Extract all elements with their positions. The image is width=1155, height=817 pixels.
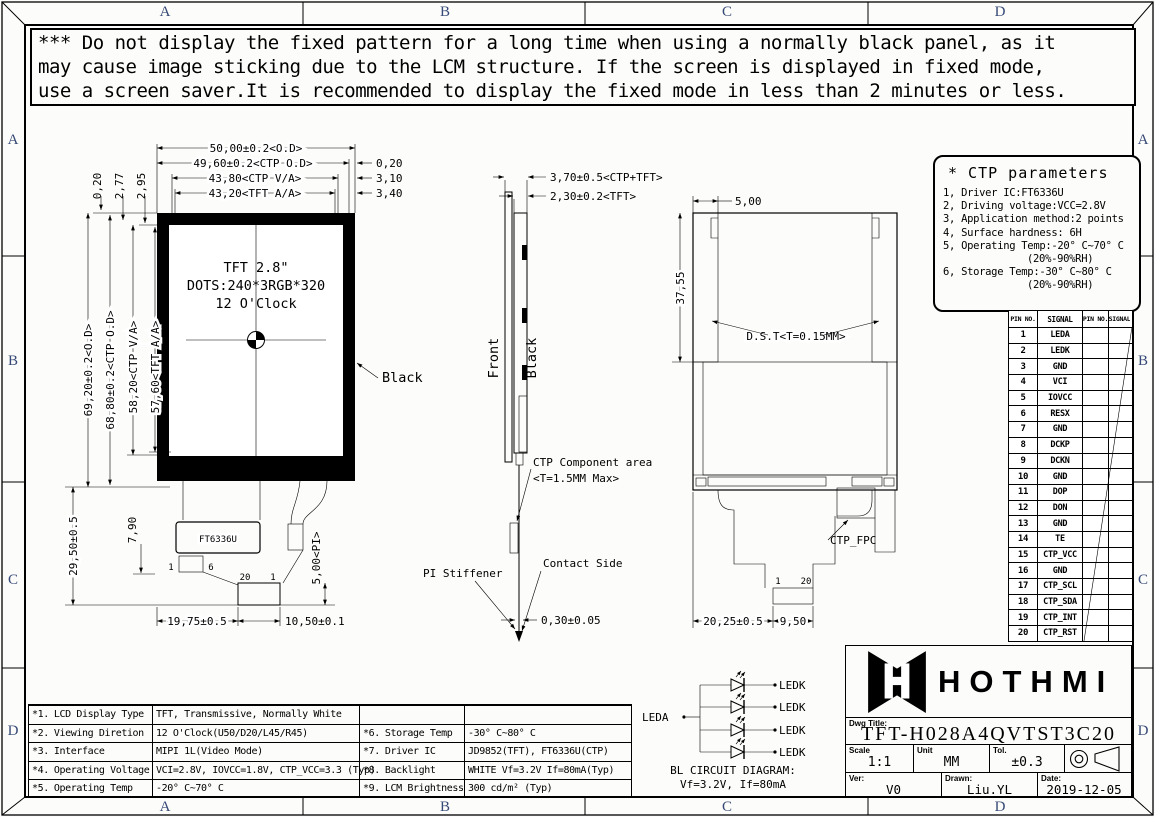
pin-signal-cell: DCKP (1037, 438, 1082, 453)
pin-number-cell: 16 (1009, 563, 1037, 578)
spec-key-cell: *4. Operating Voltage (29, 762, 152, 780)
pin-number-cell: 20 (1009, 626, 1037, 641)
dimension-label: 50,00±0.2<O.D> (210, 142, 303, 155)
spec-value-cell: 12 O'Clock(U50/D20/L45/R45) (152, 725, 359, 743)
front-view-drawing: TFT 2.8" DOTS:240*3RGB*320 12 O'Clock 50… (35, 130, 445, 655)
zone-label: C (4, 571, 22, 589)
dimension-label: 0,30±0.05 (541, 614, 601, 627)
pin-number: 6 (208, 563, 213, 573)
spec-item-label: Interface (54, 746, 105, 757)
zone-label: C (718, 798, 736, 816)
zone-label: B (4, 352, 22, 370)
pin-signal-cell: LEDK (1037, 344, 1082, 359)
zone-label: B (1134, 352, 1152, 370)
pin-number-cell: 15 (1009, 548, 1037, 563)
zone-label: D (991, 3, 1009, 21)
ver-drawn-date-row: Ver: V0 Drawn: Liu.YL Date: 2019-12-05 (846, 772, 1131, 797)
version-cell: Ver: V0 (846, 773, 941, 797)
spec-value-cell: TFT, Transmissive, Normally White (152, 706, 359, 724)
dimension-label: 58,20<CTP V/A> (127, 320, 140, 413)
dimension-label: 5,00<PI> (310, 531, 323, 584)
bl-circuit-caption: Vf=3.2V, If=80mA (680, 778, 786, 791)
contact-side-label: Contact Side (543, 557, 622, 570)
pin-signal-cell: CTP_RST (1037, 626, 1082, 641)
dst-label: D.S.T<T=0.15MM> (746, 330, 846, 343)
dimension-label: 3,10 (376, 172, 403, 185)
spec-item-label: LCM Brightness (385, 783, 464, 794)
spec-key-cell: *2. Viewing Diretion (29, 725, 152, 743)
pin-number-cell: 7 (1009, 422, 1037, 437)
pin-number-cell: 14 (1009, 532, 1037, 547)
pin-table-header-cell: PIN NO. (1082, 311, 1108, 327)
spec-item-label: LCD Display Type (54, 709, 144, 720)
led-icon (731, 701, 744, 713)
display-spec-text: TFT 2.8" (223, 260, 288, 276)
pin-signal-cell: GND (1037, 422, 1082, 437)
front-side-label: Front (486, 338, 502, 379)
zone-label: A (1134, 131, 1152, 149)
zone-label: A (156, 3, 174, 21)
pin-number-cell: 1 (1009, 328, 1037, 343)
dimension-label: 3,40 (376, 187, 403, 200)
spec-item-label: Backlight (385, 765, 436, 776)
pin-number: 1 (168, 563, 173, 573)
spec-key-cell: *1. LCD Display Type (29, 706, 152, 724)
drawn-by-label: Drawn: (945, 774, 972, 783)
pin-signal-cell: LEDA (1037, 328, 1082, 343)
spec-item-label: Operating Voltage (54, 765, 150, 776)
pin-number-cell: 5 (1009, 391, 1037, 406)
pin-number-cell: 9 (1009, 454, 1037, 469)
pin-number-cell: 10 (1009, 469, 1037, 484)
pin-number: 1 (270, 573, 275, 583)
unit-label: Unit (917, 746, 933, 755)
hothmi-logo-icon (868, 649, 926, 715)
spec-item-number: *8. (363, 765, 380, 776)
pin-signal-cell: DON (1037, 501, 1082, 516)
spec-key-cell: *9. LCM Brightness (359, 780, 464, 798)
pin-number-cell: 3 (1009, 359, 1037, 374)
pi-stiffener-shape (510, 523, 518, 553)
pin-number: 1 (775, 577, 780, 587)
zone-label: B (436, 798, 454, 816)
pin-signal-cell: DOP (1037, 485, 1082, 500)
spec-item-number: *6. (363, 728, 380, 739)
spec-key-cell: *6. Storage Temp (359, 725, 464, 743)
ctp-fpc-shape (837, 488, 875, 518)
spec-item-label: Driver IC (385, 746, 436, 757)
back-body (693, 213, 897, 490)
dimension-label: 9,50 (780, 615, 807, 628)
fpc-contact-pad (238, 583, 280, 605)
unit-cell: Unit MM (913, 745, 989, 772)
zone-label: C (718, 3, 736, 21)
dimension-label: 2,95 (135, 173, 148, 200)
pin-table-header: PIN NO. SIGNAL PIN NO. SIGNAL (1009, 311, 1132, 327)
zone-label: A (4, 131, 22, 149)
date-label: Date: (1041, 774, 1061, 783)
warning-line: may cause image sticking due to the LCM … (38, 55, 1134, 79)
spec-item-number: *1. (32, 709, 49, 720)
spec-value-cell: -30° C~80° C (464, 725, 630, 743)
pin-number-cell: 17 (1009, 579, 1037, 594)
side-view-drawing: 3,70±0.5<CTP+TFT> 2,30±0.2<TFT> 0,30±0.0… (415, 150, 670, 670)
fpc-connector (288, 524, 303, 550)
black-callout: Black (357, 363, 423, 386)
pin-signal-cell: IOVCC (1037, 391, 1082, 406)
spec-table: *1. LCD Display Type TFT, Transmissive, … (28, 704, 632, 797)
scale-label: Scale (849, 746, 870, 755)
spec-item-number: *7. (363, 746, 380, 757)
spec-item-number: *4. (32, 765, 49, 776)
bl-circuit-diagram: LEDA LEDK LEDK LEDK (628, 660, 848, 800)
spec-value-cell: WHITE Vf=3.2V If=80mA(Typ) (464, 762, 630, 780)
ctp-parameter-line: (20%-90%RH) (935, 253, 1139, 266)
warning-line: *** Do not display the fixed pattern for… (38, 31, 1134, 55)
display-spec-text: DOTS:240*3RGB*320 (187, 278, 325, 294)
front-fpc: FT6336U 1 6 20 1 5,00<PI> (65, 481, 335, 605)
zone-label: D (4, 722, 22, 740)
dimension-label: 2,77 (113, 173, 126, 200)
pin-signal-cell: CTP_INT (1037, 610, 1082, 625)
dwg-title-row: Dwg Title: TFT-H028A4QVTST3C20 (846, 717, 1131, 744)
pin-table: PIN NO. SIGNAL PIN NO. SIGNAL 1 LEDA 2 L… (1008, 310, 1133, 642)
third-angle-projection-icon (1065, 745, 1127, 772)
chip-label: FT6336U (199, 535, 237, 545)
pin-number-cell: 4 (1009, 375, 1037, 390)
zone-label: C (1134, 571, 1152, 589)
warning-note: *** Do not display the fixed pattern for… (30, 28, 1136, 106)
spec-key-cell: *7. Driver IC (359, 743, 464, 761)
dimension-label: 69,20±0.2<O.D> (82, 323, 95, 416)
pin-number-cell: 8 (1009, 438, 1037, 453)
dwg-title-label: Dwg Title: (849, 719, 887, 728)
spec-value-cell: -20° C~70° C (152, 780, 359, 798)
pin-number-cell: 12 (1009, 501, 1037, 516)
spec-item-number: *5. (32, 783, 49, 794)
black-side-label: Black (524, 338, 540, 379)
dimension-label: 7,90 (126, 517, 139, 544)
drawn-by-cell: Drawn: Liu.YL (941, 773, 1037, 797)
spec-value-cell: VCI=2.8V, IOVCC=1.8V, CTP_VCC=3.3 (Typ) (152, 762, 359, 780)
dimension-label: 49,60±0.2<CTP O.D> (193, 157, 313, 170)
fpc-connector (179, 556, 203, 572)
dimension-label: 19,75±0.5 (167, 615, 227, 628)
pin-number-cell: 2 (1009, 344, 1037, 359)
ctp-parameter-line: 1, Driver IC:FT6336U (943, 187, 1139, 200)
side-callouts: CTP Component area <T=1.5MM Max> PI Stif… (423, 456, 652, 631)
ctp-component-area-label: <T=1.5MM Max> (533, 472, 619, 485)
spec-table-row: *1. LCD Display Type TFT, Transmissive, … (29, 705, 631, 724)
pin-signal-cell: CTP_SCL (1037, 579, 1082, 594)
tolerance-label: Tol. (993, 746, 1007, 755)
drawing-sheet: A B C D A B C D A B C D A B C D *** Do n… (0, 0, 1155, 817)
pin-number-cell: 6 (1009, 406, 1037, 421)
tolerance-cell: Tol. ±0.3 (989, 745, 1064, 772)
spec-value-cell: 300 cd/m² (Typ) (464, 780, 630, 798)
dimension-label: 0,20 (91, 173, 104, 200)
dimension-label: 2,30±0.2<TFT> (550, 190, 636, 203)
pin-signal-cell: VCI (1037, 375, 1082, 390)
pin-number-cell: 13 (1009, 516, 1037, 531)
pin-signal-cell: GND (1037, 563, 1082, 578)
pin-number-cell: 19 (1009, 610, 1037, 625)
ctp-parameter-line: (20%-90%RH) (935, 279, 1139, 292)
led-icon (731, 724, 744, 736)
fpc-tail-connector (773, 588, 813, 604)
front-bottom-dimensions: 19,75±0.5 10,50±0.1 (157, 607, 345, 628)
led-icon (731, 679, 744, 691)
pin-table-diagonal (1084, 327, 1132, 641)
side-profile (505, 192, 527, 642)
ctp-parameters-box: * CTP parameters 1, Driver IC:FT6336U 2,… (933, 155, 1141, 312)
bl-circuit-caption: BL CIRCUIT DIAGRAM: (670, 764, 796, 777)
version-label: Ver: (849, 774, 864, 783)
spec-key-cell (359, 706, 464, 724)
pin-signal-cell: GND (1037, 516, 1082, 531)
date-cell: Date: 2019-12-05 (1037, 773, 1130, 797)
spec-item-number: *9. (363, 783, 380, 794)
spec-table-row: *5. Operating Temp -20° C~70° C *9. LCM … (29, 779, 631, 798)
dimension-label: 5,00 (735, 195, 762, 208)
spec-item-label: Viewing Diretion (54, 728, 144, 739)
spec-item-number: *3. (32, 746, 49, 757)
contact-tip-icon (515, 631, 523, 642)
spec-table-row: *3. Interface MIPI 1L(Video Mode) *7. Dr… (29, 742, 631, 761)
pin-signal-cell: CTP_SDA (1037, 595, 1082, 610)
back-view-drawing: 1 20 CTP_FPC 5,00 37,55 D.S.T<T=0.15MM> … (660, 160, 945, 660)
pin-number: 20 (801, 577, 812, 587)
spec-key-cell: *5. Operating Temp (29, 780, 152, 798)
ledk-label: LEDK (779, 724, 806, 737)
pin-signal-cell: GND (1037, 359, 1082, 374)
ctp-component-area-label: CTP Component area (533, 456, 652, 469)
ctp-parameter-line: 5, Operating Temp:-20° C~70° C (943, 240, 1139, 253)
adhesive-tape-area (703, 362, 887, 475)
warning-line: use a screen saver.It is recommended to … (38, 79, 1134, 103)
spec-item-number: *2. (32, 728, 49, 739)
pin-table-header-cell: SIGNAL (1108, 311, 1130, 327)
spec-item-label: Operating Temp (54, 783, 133, 794)
led-branch: LEDK (700, 693, 806, 714)
pin-signal-cell: DCKN (1037, 454, 1082, 469)
pin-table-header-cell: PIN NO. (1009, 311, 1037, 327)
pin-signal-cell: RESX (1037, 406, 1082, 421)
led-branch: LEDK (700, 671, 806, 692)
dimension-label: 43,20<TFT A/A> (209, 187, 302, 200)
dimension-label: 57,60<TFT A/A> (149, 320, 162, 413)
ctp-parameters-title: * CTP parameters (948, 164, 1139, 182)
ctp-parameter-line: 6, Storage Temp:-30° C~80° C (943, 266, 1139, 279)
drawing-number: TFT-H028A4QVTST3C20 (846, 718, 1131, 744)
brand-area: HOTHMI (846, 646, 1131, 717)
ctp-parameter-line: 2, Driving voltage:VCC=2.8V (943, 200, 1139, 213)
scale-cell: Scale 1:1 (846, 745, 913, 772)
pin-signal-cell: CTP_VCC (1037, 548, 1082, 563)
title-block: HOTHMI Dwg Title: TFT-H028A4QVTST3C20 Sc… (845, 645, 1132, 797)
spec-table-row: *4. Operating Voltage VCI=2.8V, IOVCC=1.… (29, 761, 631, 780)
brand-name: HOTHMI (938, 664, 1114, 700)
spec-value-cell: MIPI 1L(Video Mode) (152, 743, 359, 761)
ctp-fpc-label: CTP_FPC (830, 534, 876, 547)
ctp-parameter-line: 3, Application method:2 points (943, 213, 1139, 226)
back-fpc: 1 20 CTP_FPC (718, 488, 895, 604)
pin-number-cell: 11 (1009, 485, 1037, 500)
lcd-panel: TFT 2.8" DOTS:240*3RGB*320 12 O'Clock (157, 213, 355, 481)
ledk-label: LEDK (779, 679, 806, 692)
dimension-label: 29,50±0.5 (67, 516, 80, 576)
ledk-label: LEDK (779, 701, 806, 714)
zone-label: D (1134, 722, 1152, 740)
led-icon (731, 746, 744, 758)
ctp-parameter-line: 4, Surface hardness: 6H (943, 227, 1139, 240)
dimension-label: 3,70±0.5<CTP+TFT> (550, 171, 663, 184)
spec-key-cell: *3. Interface (29, 743, 152, 761)
pi-stiffener-label: PI Stiffener (423, 567, 503, 580)
dimension-label: 43,80<CTP V/A> (209, 172, 302, 185)
dimension-label: 68,80±0.2<CTP O.D> (104, 310, 117, 430)
pin-number-cell: 18 (1009, 595, 1037, 610)
zone-label: B (436, 3, 454, 21)
front-top-dimensions: 50,00±0.2<O.D> 49,60±0.2<CTP O.D> 43,80<… (91, 142, 403, 225)
pin-signal-cell: TE (1037, 532, 1082, 547)
led-branch: LEDK (700, 716, 806, 737)
dimension-label: 10,50±0.1 (285, 615, 345, 628)
display-spec-text: 12 O'Clock (215, 296, 296, 312)
projection-symbol-cell (1064, 745, 1130, 772)
led-branch: LEDK (700, 738, 806, 759)
spec-key-cell: *8. Backlight (359, 762, 464, 780)
spec-table-row: *2. Viewing Diretion 12 O'Clock(U50/D20/… (29, 724, 631, 743)
spec-item-label: Storage Temp (385, 728, 452, 739)
dimension-label: 0,20 (376, 157, 403, 170)
dimension-label: 37,55 (674, 271, 687, 304)
zone-label: A (156, 798, 174, 816)
spec-value-cell (464, 706, 630, 724)
pin-number: 20 (240, 573, 251, 583)
scale-unit-tol-row: Scale 1:1 Unit MM Tol. ±0.3 (846, 744, 1131, 772)
dimension-label: 20,25±0.5 (703, 615, 763, 628)
front-left-dimensions: 69,20±0.2<O.D> 68,80±0.2<CTP O.D> 58,20<… (65, 213, 171, 605)
pin-table-header-cell: SIGNAL (1037, 311, 1082, 327)
leda-label: LEDA (642, 711, 669, 724)
ledk-label: LEDK (779, 746, 806, 759)
spec-value-cell: JD9852(TFT), FT6336U(CTP) (464, 743, 630, 761)
zone-label: D (991, 798, 1009, 816)
pin-signal-cell: GND (1037, 469, 1082, 484)
